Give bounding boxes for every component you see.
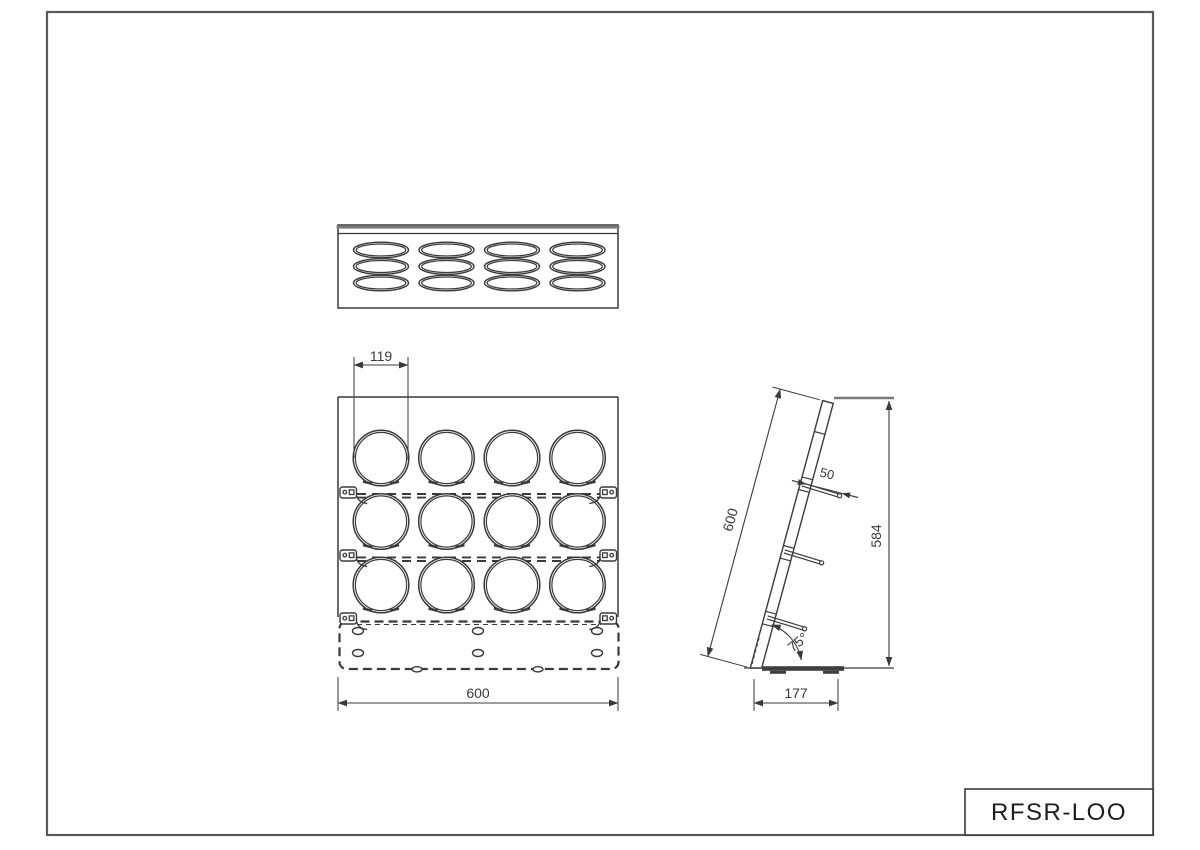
front-view: 119 600 [338,348,619,711]
dim-panel-length: 600 [700,387,820,667]
dim-label-600-length: 600 [719,506,741,533]
technical-drawing: 119 600 [0,0,1200,850]
dim-base-depth: 177 [754,679,838,711]
dim-label-177: 177 [784,685,808,701]
drawing-sheet: 119 600 [0,0,1200,850]
side-view: 600 50 584 75° 177 [700,387,894,711]
top-view [338,225,618,308]
dim-label-50: 50 [818,465,836,483]
bottom-tray [340,622,619,672]
title-block: RFSR-LOO [965,789,1153,835]
tray-slots [353,628,603,657]
tilted-panel [750,401,833,668]
dim-label-600-width: 600 [466,685,490,701]
drawing-frame [47,12,1153,835]
dim-label-119: 119 [370,348,393,364]
model-number: RFSR-LOO [991,799,1127,826]
base-plate [762,666,844,674]
dim-rack-width: 600 [338,677,618,711]
dim-overall-height: 584 [834,398,894,666]
front-view-holes [353,430,605,613]
dim-label-75deg: 75° [785,629,812,655]
dim-label-584: 584 [868,524,884,548]
